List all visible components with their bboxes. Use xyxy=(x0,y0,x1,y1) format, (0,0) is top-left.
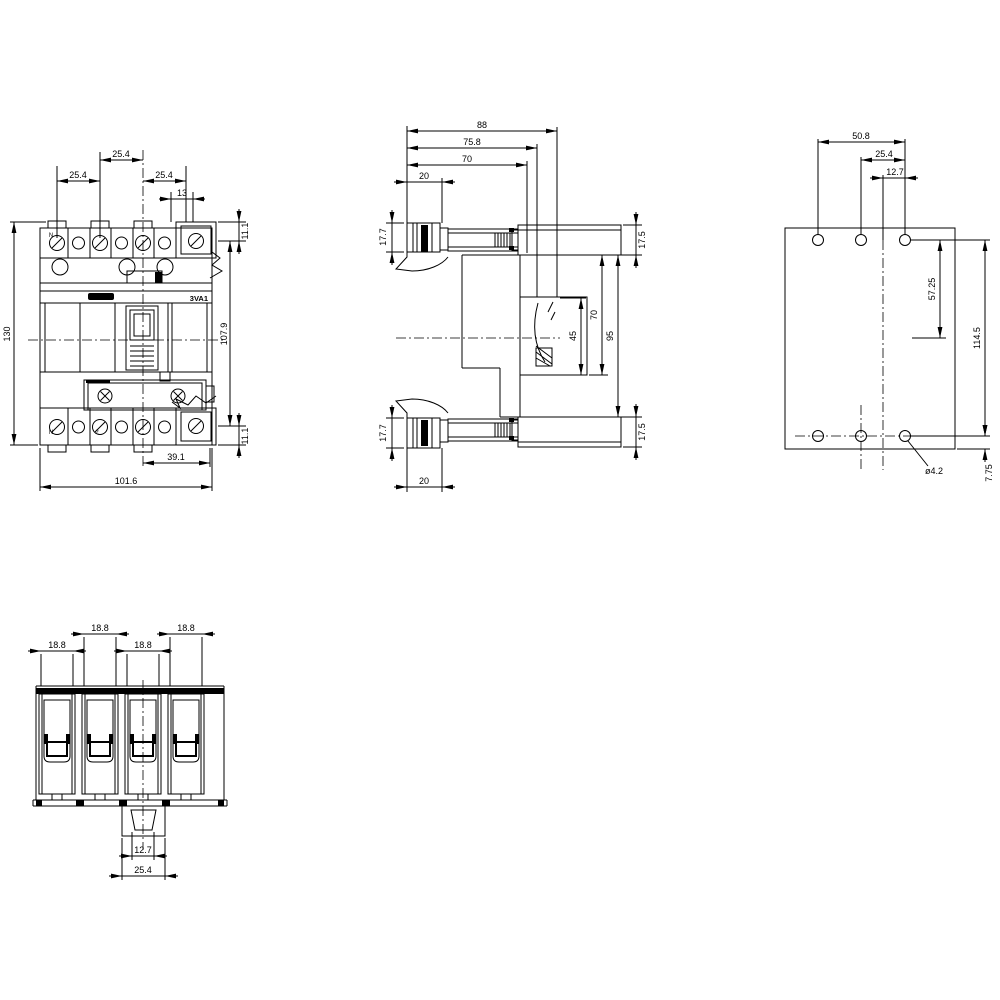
dim-front-terminal-offset-bottom: 11.1 xyxy=(240,428,250,445)
bottom-view xyxy=(28,634,227,880)
side-curves xyxy=(396,252,555,418)
dim-side-terminal-height-top: 17.7 xyxy=(378,228,388,246)
dim-rear-hole-to-center: 12.7 xyxy=(886,167,904,177)
dim-front-terminal-width: 13 xyxy=(177,188,187,198)
dim-front-terminal-offset-top: 11.1 xyxy=(240,223,250,240)
dim-side-front-step-top: 20 xyxy=(419,171,429,181)
dim-bottom-pole2-width: 18.8 xyxy=(91,623,109,633)
dim-front-bottom-offset: 39.1 xyxy=(167,452,185,462)
terminal-label-bottom-2: 2 xyxy=(95,430,99,436)
dim-bottom-pole1-width: 18.8 xyxy=(48,640,66,650)
dim-front-mount-height: 107.9 xyxy=(219,323,229,346)
hole-diameter-leader xyxy=(908,441,928,466)
dim-rear-hole-span: 50.8 xyxy=(852,131,870,141)
dim-side-rear-window: 45 xyxy=(568,331,578,341)
dim-front-pitch-left: 25.4 xyxy=(69,170,87,180)
dim-bottom-pole4-width: 18.8 xyxy=(177,623,195,633)
front-screws xyxy=(50,234,223,435)
brand-logo-block xyxy=(88,293,114,300)
dim-side-rear-height: 70 xyxy=(589,310,599,320)
rear-dimensions xyxy=(818,139,990,462)
dim-side-bar-height-top: 17.5 xyxy=(637,231,647,249)
dim-side-depth-total: 88 xyxy=(477,120,487,130)
mounting-holes xyxy=(813,235,911,442)
dim-front-pitch-mid: 25.4 xyxy=(112,149,130,159)
dim-rear-edge-offset: 7.75 xyxy=(984,464,994,482)
rear-view xyxy=(785,139,990,470)
dim-front-pitch-right: 25.4 xyxy=(155,170,173,180)
dim-front-height: 130 xyxy=(2,326,12,341)
dim-rear-upper-span: 57.25 xyxy=(927,278,937,301)
dimension-drawing: 25.4 25.4 25.4 13 11.1 130 107.9 11.1 39… xyxy=(0,0,1000,1000)
dim-side-rear-clearance: 95 xyxy=(605,331,615,341)
drawing-canvas: 25.4 25.4 25.4 13 11.1 130 107.9 11.1 39… xyxy=(0,0,1000,1000)
micro-label-block xyxy=(86,380,110,383)
product-model-label: 3VA1 xyxy=(190,294,208,303)
dim-side-depth-rear: 75.8 xyxy=(463,137,481,147)
dim-side-front-step-bottom: 20 xyxy=(419,476,429,486)
terminal-label-bottom-n: N xyxy=(49,430,53,436)
terminal-label-top-n: N xyxy=(49,233,53,239)
dim-rear-hole-pitch: 25.4 xyxy=(875,149,893,159)
dim-side-depth-case: 70 xyxy=(462,154,472,164)
dim-rear-hole-diameter: ø4.2 xyxy=(925,466,943,476)
dim-bottom-clip-outer: 25.4 xyxy=(134,865,152,875)
dim-bottom-pole3-width: 18.8 xyxy=(134,640,152,650)
dim-rear-hole-row-span: 114.5 xyxy=(972,327,982,349)
dim-bottom-clip-inner: 12.7 xyxy=(134,845,152,855)
front-view xyxy=(10,150,246,491)
dim-side-terminal-height-bottom: 17.7 xyxy=(378,424,388,442)
dim-front-width: 101.6 xyxy=(115,476,138,486)
dim-side-bar-height-bottom: 17.5 xyxy=(637,423,647,441)
